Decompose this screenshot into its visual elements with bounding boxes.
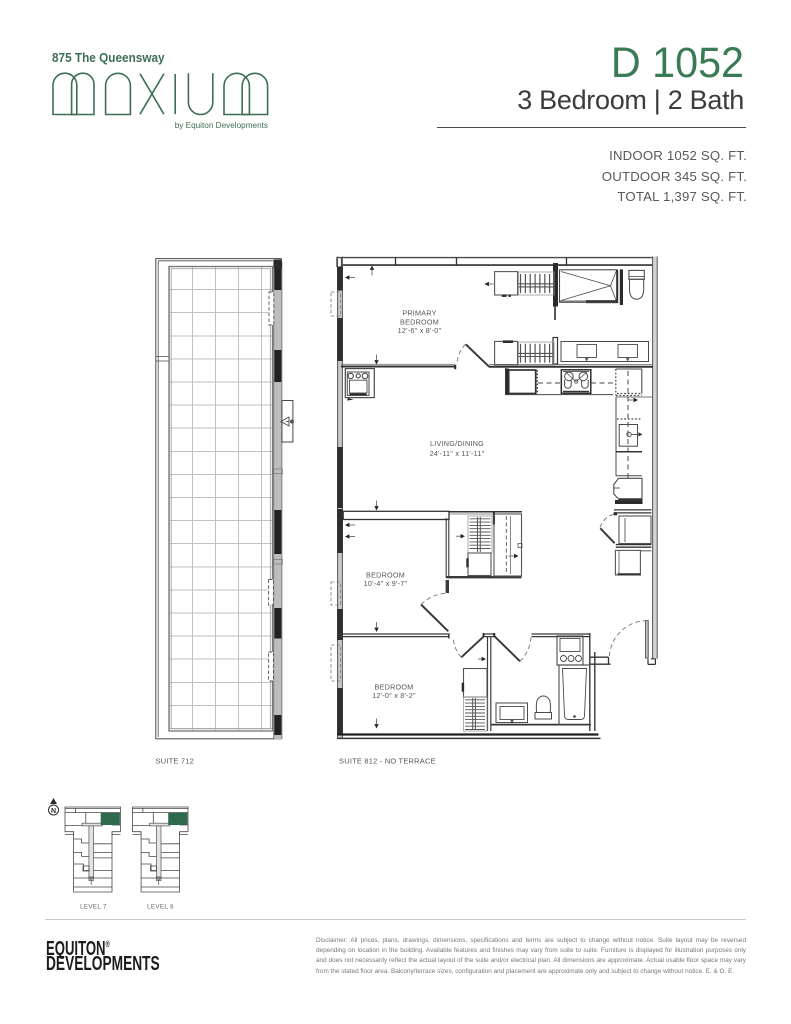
- svg-text:SUITE 812 - NO TERRACE: SUITE 812 - NO TERRACE: [339, 757, 436, 766]
- svg-text:10'-4" x 9'-7": 10'-4" x 9'-7": [364, 579, 408, 588]
- svg-text:SUITE 712: SUITE 712: [156, 757, 194, 766]
- svg-text:12'-6" x 8'-0": 12'-6" x 8'-0": [398, 326, 442, 335]
- svg-text:24'-11" x 11'-11": 24'-11" x 11'-11": [430, 449, 485, 458]
- svg-text:N: N: [51, 808, 56, 815]
- svg-text:PRIMARY: PRIMARY: [402, 309, 436, 318]
- svg-text:12'-0" x 8'-2": 12'-0" x 8'-2": [372, 691, 416, 700]
- svg-text:LEVEL 7: LEVEL 7: [80, 904, 107, 911]
- svg-text:LIVING/DINING: LIVING/DINING: [430, 439, 484, 448]
- svg-text:LEVEL 8: LEVEL 8: [147, 904, 174, 911]
- svg-text:BEDROOM: BEDROOM: [400, 317, 439, 326]
